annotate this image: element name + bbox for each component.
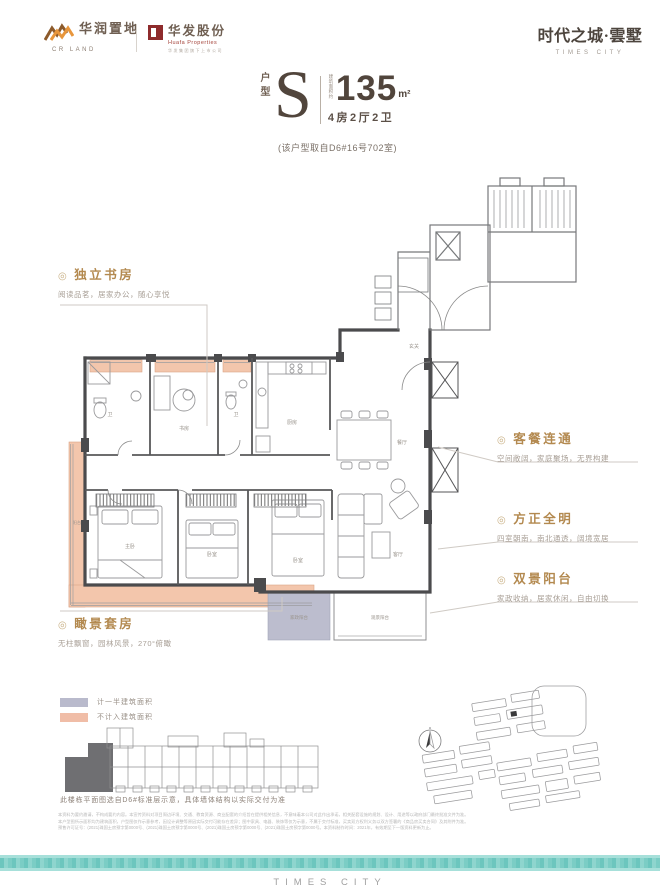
- callout-bright: ◎方正全明 四室朝南，南北通透，阔境宽居: [497, 508, 609, 544]
- svg-text:观景阳台: 观景阳台: [371, 614, 389, 621]
- wall-pillars: [81, 352, 432, 592]
- windows: [71, 360, 313, 606]
- crland-mountain-icon: [44, 20, 74, 44]
- elevator-shafts: [432, 362, 458, 492]
- callout-bullet-icon: ◎: [497, 515, 508, 526]
- callout-bullet-icon: ◎: [497, 575, 508, 586]
- legend-row-excluded: 不计入建筑面积: [60, 712, 153, 722]
- svg-text:家政阳台: 家政阳台: [290, 614, 308, 621]
- footer-brand: TIMES CITY: [0, 877, 660, 888]
- header-divider: [136, 24, 137, 52]
- legend-label-excluded: 不计入建筑面积: [97, 712, 153, 722]
- unit-type-label: 户型: [256, 72, 271, 100]
- huafa-sub: Huafa Properties: [168, 40, 226, 46]
- callout-bright-desc: 四室朝南，南北通透，阔境宽居: [497, 533, 609, 544]
- compass-icon: [419, 727, 441, 752]
- project-brand: 时代之城·雲墅 TIMES CITY: [534, 22, 646, 56]
- callout-bullet-icon: ◎: [497, 435, 508, 446]
- callout-view-suite-title: 瞰景套房: [74, 617, 134, 631]
- callout-dual-balcony: ◎双景阳台 家政收纳，居家休闲，自由切换: [497, 568, 609, 604]
- svg-text:阳台: 阳台: [73, 519, 81, 526]
- callout-study: ◎独立书房 阅读品茗，居家办公，随心享悦: [58, 264, 170, 300]
- wardrobes: [96, 494, 306, 507]
- callout-bright-title: 方正全明: [513, 512, 573, 526]
- legend-label-half-area: 计一半建筑面积: [97, 697, 153, 707]
- callout-view-suite-desc: 无柱飘窗，园林风景，270°俯瞰: [58, 638, 172, 649]
- huafa-name: 华发股份: [168, 24, 226, 39]
- unit-type-letter: S: [274, 62, 312, 127]
- svg-text:卧室: 卧室: [207, 551, 217, 558]
- keyplan-caption: 此楼栋平面图选自D6#标准层示意，具体墙体结构以实际交付为准: [60, 795, 286, 805]
- furniture: [88, 362, 420, 578]
- room-labels: 卫 书房 卫 厨房 餐厅 玄关 客厅 主卧 卧室 卧室 阳台 家政阳台 观景阳台: [73, 343, 419, 621]
- footer-teal-band: [0, 855, 660, 871]
- interior-walls: [85, 358, 332, 585]
- huafa-tagline: 华发集团旗下上市公司: [168, 48, 226, 54]
- callout-study-title: 独立书房: [74, 268, 134, 282]
- legend-swatch-half-area: [60, 698, 88, 707]
- unit-area-unit: m²: [398, 85, 410, 105]
- callout-dual-balcony-desc: 家政收纳，居家休闲，自由切换: [497, 593, 609, 604]
- project-subtitle: TIMES CITY: [534, 50, 646, 56]
- crland-sub: CR LAND: [52, 47, 96, 53]
- disclaimer: 本资料为要约邀请，不构成要约内容。本宣传资料对项目周边环境、交通、教育资源、商业…: [58, 812, 606, 832]
- svg-text:卫: 卫: [233, 412, 238, 418]
- huafa-mark-icon: [148, 25, 163, 40]
- building-keyplan: [65, 728, 318, 792]
- callout-dining-title: 客餐连通: [513, 432, 573, 446]
- stair-core: [375, 178, 576, 330]
- svg-text:客厅: 客厅: [393, 551, 403, 558]
- legend-row-half: 计一半建筑面积: [60, 697, 153, 707]
- callout-dining-desc: 空间敞阔，家庭聚场，无界构建: [497, 453, 609, 464]
- svg-text:餐厅: 餐厅: [397, 439, 407, 446]
- svg-text:厨房: 厨房: [287, 419, 297, 426]
- poster-page: 卫 书房 卫 厨房 餐厅 玄关 客厅 主卧 卧室 卧室 阳台 家政阳台 观景阳台: [0, 0, 660, 896]
- unit-area-value: 135: [336, 73, 397, 105]
- disclaimer-line: 预售许可证号：(2021)珠国土房预字第0000号、(2021)珠国土房预字第0…: [58, 825, 606, 832]
- callout-dual-balcony-title: 双景阳台: [513, 572, 573, 586]
- svg-text:卧室: 卧室: [293, 557, 303, 564]
- svg-text:玄关: 玄关: [409, 343, 419, 350]
- unit-area-note: 建筑面积约: [328, 74, 334, 99]
- callout-study-desc: 阅读品茗，居家办公，随心享悦: [58, 289, 170, 300]
- footer-teal-stripes: [0, 858, 660, 868]
- area-legend: 计一半建筑面积 不计入建筑面积: [60, 697, 153, 727]
- crland-name: 华润置地: [79, 20, 139, 38]
- callout-bullet-icon: ◎: [58, 620, 69, 631]
- unit-layout: 4房2厅2卫: [328, 109, 411, 125]
- svg-text:书房: 书房: [179, 425, 189, 432]
- unit-divider: [320, 76, 321, 124]
- huafa-logo: 华发股份 Huafa Properties 华发集团旗下上市公司: [148, 24, 226, 54]
- svg-text:卫: 卫: [107, 412, 112, 418]
- callout-bullet-icon: ◎: [58, 271, 69, 282]
- unit-title-block: 户型 S 建筑面积约 135 m² 4房2厅2卫: [256, 62, 410, 127]
- site-plan: [419, 686, 605, 812]
- callout-dining: ◎客餐连通 空间敞阔，家庭聚场，无界构建: [497, 428, 609, 464]
- svg-text:主卧: 主卧: [125, 543, 135, 550]
- project-title: 时代之城·雲墅: [534, 22, 646, 46]
- unit-source-note: (该户型取自D6#16号702室): [250, 141, 425, 154]
- callout-view-suite: ◎瞰景套房 无柱飘窗，园林风景，270°俯瞰: [58, 613, 172, 649]
- crland-logo: 华润置地: [44, 20, 139, 44]
- legend-swatch-excluded: [60, 713, 88, 722]
